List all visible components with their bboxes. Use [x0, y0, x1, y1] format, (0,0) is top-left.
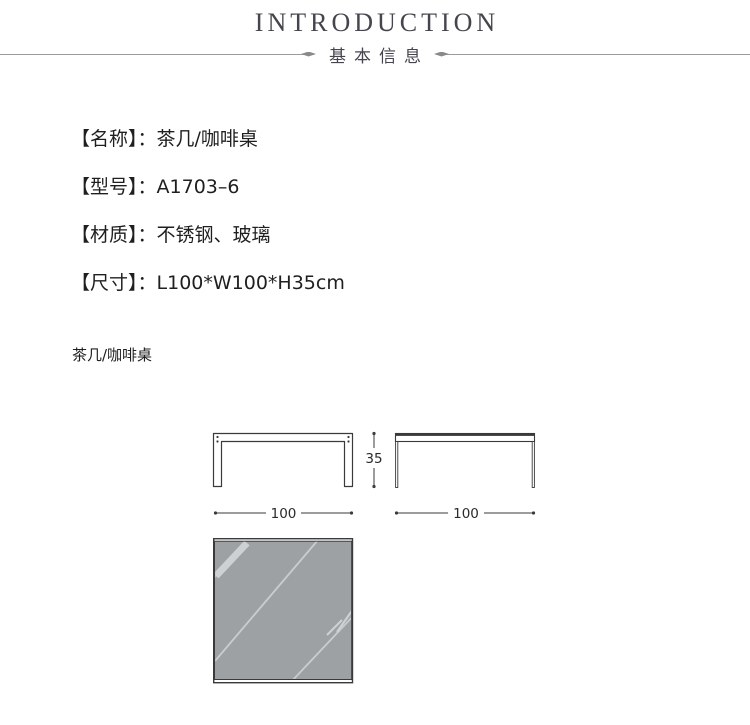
detail-separator: ： [138, 224, 157, 246]
detail-label: 【尺寸】 [71, 272, 138, 294]
detail-row-material: 【材质】：不锈钢、玻璃 [71, 224, 345, 246]
detail-value: L100*W100*H35cm [157, 272, 345, 294]
right-rule-line [436, 54, 750, 55]
detail-value: 不锈钢、玻璃 [157, 224, 271, 246]
detail-row-size: 【尺寸】：L100*W100*H35cm [71, 272, 345, 294]
drawing-caption: 茶几/咖啡桌 [72, 344, 152, 365]
front-view-drawing [214, 434, 353, 487]
detail-value: 茶几/咖啡桌 [157, 128, 258, 150]
top-view-drawing [212, 539, 356, 683]
left-rule-line [0, 54, 314, 55]
height-dimension: 35 [365, 432, 382, 488]
front-width-dimension: 100 [214, 506, 353, 522]
section-subtitle-row: 基本信息 [0, 46, 750, 62]
detail-separator: ： [138, 128, 157, 150]
section-subtitle: 基本信息 [314, 42, 444, 67]
detail-row-model: 【型号】：A1703–6 [71, 176, 345, 198]
product-details-list: 【名称】：茶几/咖啡桌 【型号】：A1703–6 【材质】：不锈钢、玻璃 【尺寸… [71, 128, 345, 320]
front-width-dimension-label: 100 [271, 506, 297, 522]
detail-label: 【型号】 [71, 176, 138, 198]
detail-label: 【名称】 [71, 128, 138, 150]
side-view-drawing [396, 434, 535, 488]
detail-separator: ： [138, 272, 157, 294]
detail-row-name: 【名称】：茶几/咖啡桌 [71, 128, 345, 150]
side-width-dimension-label: 100 [453, 506, 479, 522]
page-title: INTRODUCTION [0, 8, 750, 38]
detail-value: A1703–6 [157, 176, 240, 198]
side-width-dimension: 100 [395, 506, 535, 522]
detail-label: 【材质】 [71, 224, 138, 246]
technical-drawings: 35 100 100 [195, 420, 565, 710]
height-dimension-label: 35 [365, 451, 382, 467]
detail-separator: ： [138, 176, 157, 198]
